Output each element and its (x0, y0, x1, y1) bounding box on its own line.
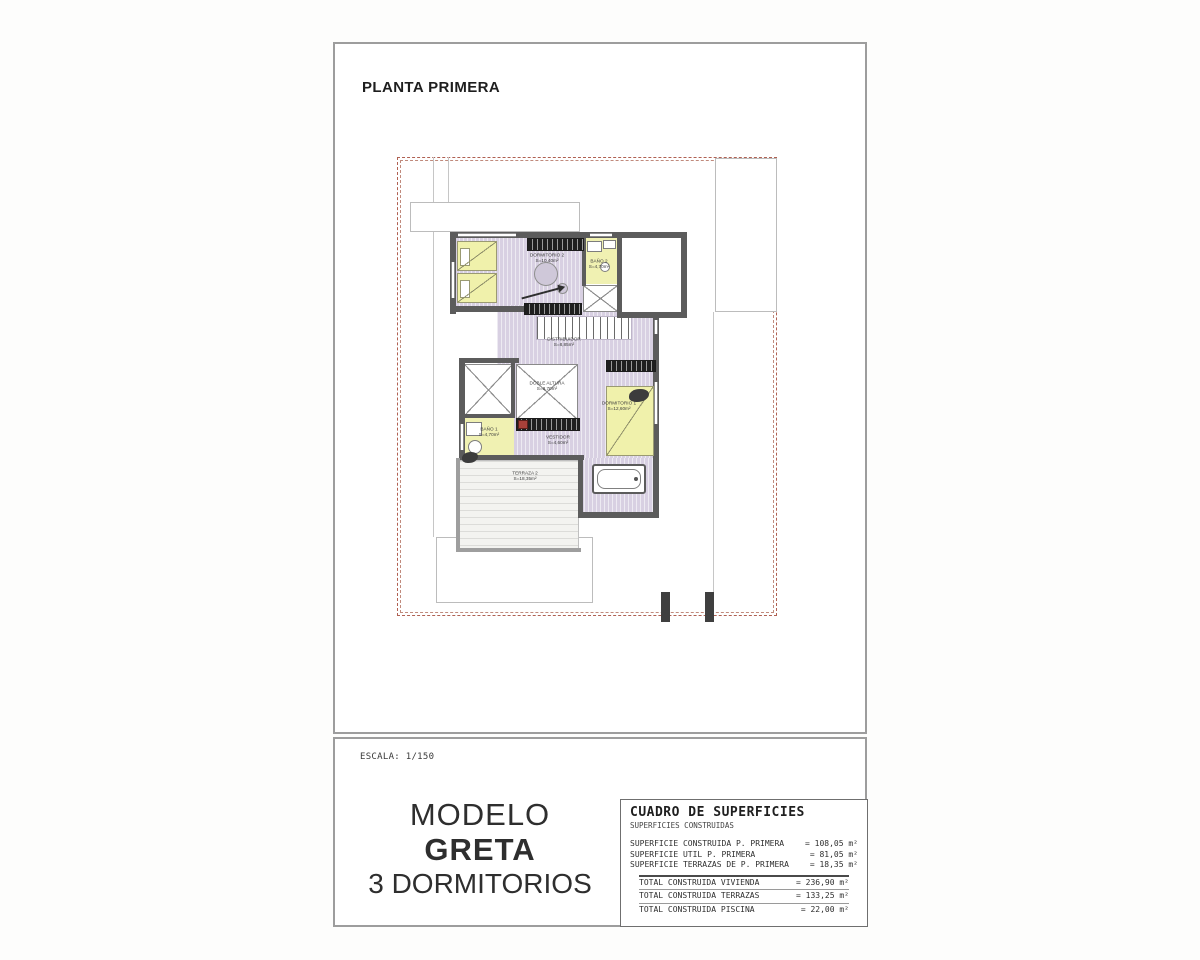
total-value: = 236,90 m² (796, 878, 849, 889)
railing (536, 316, 632, 340)
page-title: PLANTA PRIMERA (362, 79, 500, 96)
surface-label: SUPERFICIE CONSTRUIDA P. PRIMERA (630, 839, 784, 850)
surface-row: SUPERFICIE TERRAZAS DE P. PRIMERA = 18,3… (630, 860, 858, 871)
room-label-bano-1: BAÑO 1 S=4,70m² (471, 428, 507, 439)
window (654, 382, 658, 424)
room-label-distribuidor: DISTRIBUIDOR S=8,85m² (536, 338, 592, 349)
wardrobe (524, 303, 582, 315)
stairwell (464, 364, 513, 416)
sink (587, 241, 602, 252)
model-bedrooms: 3 DORMITORIOS (340, 868, 620, 900)
wall (617, 232, 622, 316)
wall (578, 512, 659, 518)
total-value: = 22,00 m² (801, 905, 849, 916)
wardrobe (606, 360, 656, 372)
model-word: MODELO (340, 797, 620, 833)
total-row: TOTAL CONSTRUIDA TERRAZAS = 133,25 m² (639, 890, 849, 904)
entrance-gate-post (705, 592, 714, 622)
double-bed (606, 386, 654, 456)
ghost-line (448, 157, 449, 203)
surfaces-totals: TOTAL CONSTRUIDA VIVIENDA = 236,90 m² TO… (639, 875, 849, 917)
total-value: = 133,25 m² (796, 891, 849, 902)
room-area: S=8,85m² (554, 343, 574, 348)
surfaces-table-subtitle: SUPERFICIES CONSTRUIDAS (630, 821, 858, 830)
bathtub-drain (634, 477, 638, 481)
ghost-line (433, 232, 434, 537)
bed-cover-line (458, 242, 496, 270)
window (451, 262, 455, 298)
terrace-parapet (456, 548, 581, 552)
ghost-line (713, 312, 714, 616)
ghost-line (433, 157, 434, 203)
room-label-bano-2: BAÑO 2 S=4,70m² (580, 260, 619, 271)
total-label: TOTAL CONSTRUIDA PISCINA (639, 905, 755, 916)
room-area: S=4,70m² (589, 265, 609, 270)
wall (462, 414, 514, 418)
drawing-sheet-page: PLANTA PRIMERA ESCALA: 1/150 (0, 0, 1200, 960)
room-label-vestidor: VESTIDOR S=4,60m² (535, 436, 582, 447)
surface-label: SUPERFICIE TERRAZAS DE P. PRIMERA (630, 860, 789, 871)
room-label-terraza-2: TERRAZA 2 S=18,35m² (499, 472, 550, 483)
room-area: S=8,70m² (537, 387, 557, 392)
toilet-cistern (603, 240, 616, 249)
wardrobe (527, 238, 584, 251)
surface-value: = 81,05 m² (810, 850, 858, 861)
wardrobe-accent (518, 420, 528, 429)
surface-row: SUPERFICIE UTIL P. PRIMERA = 81,05 m² (630, 850, 858, 861)
surfaces-table-content: CUADRO DE SUPERFICIES SUPERFICIES CONSTR… (630, 805, 858, 921)
room-area: S=4,60m² (548, 441, 568, 446)
surfaces-rows: SUPERFICIE CONSTRUIDA P. PRIMERA = 108,0… (630, 839, 858, 871)
ghost-roof-outline (410, 202, 580, 232)
model-name: GRETA (340, 832, 620, 868)
surfaces-table: CUADRO DE SUPERFICIES SUPERFICIES CONSTR… (620, 799, 868, 927)
room-area: S=18,35m² (513, 477, 536, 482)
surface-value: = 108,05 m² (805, 839, 858, 850)
stairs-upper (583, 285, 618, 312)
ghost-roof-outline (715, 158, 777, 312)
total-row: TOTAL CONSTRUIDA VIVIENDA = 236,90 m² (639, 877, 849, 891)
room-area: S=10,40m² (535, 259, 558, 264)
wall (450, 306, 527, 312)
room-label-doble-altura: DOBLE ALTURA S=8,70m² (520, 382, 575, 393)
room-area: S=4,70m² (479, 433, 499, 438)
entrance-gate-post (661, 592, 670, 622)
bathtub (592, 464, 646, 494)
twin-bed (457, 273, 497, 303)
wall (511, 360, 515, 418)
window (654, 320, 658, 334)
bed-cover-line (458, 274, 496, 302)
window (460, 424, 464, 450)
terrace-parapet (456, 458, 460, 552)
wall (617, 312, 687, 318)
window (590, 233, 612, 237)
room-label-dormitorio-1: DORMITORIO 1 S=12,60m² (592, 402, 647, 413)
table (534, 262, 558, 286)
wall (681, 232, 687, 318)
surfaces-table-title: CUADRO DE SUPERFICIES (630, 805, 858, 820)
twin-bed (457, 241, 497, 271)
wall (459, 358, 519, 363)
room-label-dormitorio-2: DORMITORIO 2 S=10,40m² (520, 254, 575, 265)
room-area: S=12,60m² (607, 407, 630, 412)
window (458, 233, 516, 237)
wall (578, 455, 583, 517)
surface-label: SUPERFICIE UTIL P. PRIMERA (630, 850, 755, 861)
total-row: TOTAL CONSTRUIDA PISCINA = 22,00 m² (639, 904, 849, 917)
model-title-block: MODELO GRETA 3 DORMITORIOS (340, 797, 620, 900)
scale-label: ESCALA: 1/150 (360, 752, 434, 762)
total-label: TOTAL CONSTRUIDA TERRAZAS (639, 891, 759, 902)
surface-value: = 18,35 m² (810, 860, 858, 871)
total-label: TOTAL CONSTRUIDA VIVIENDA (639, 878, 759, 889)
wall (653, 458, 659, 517)
surface-row: SUPERFICIE CONSTRUIDA P. PRIMERA = 108,0… (630, 839, 858, 850)
